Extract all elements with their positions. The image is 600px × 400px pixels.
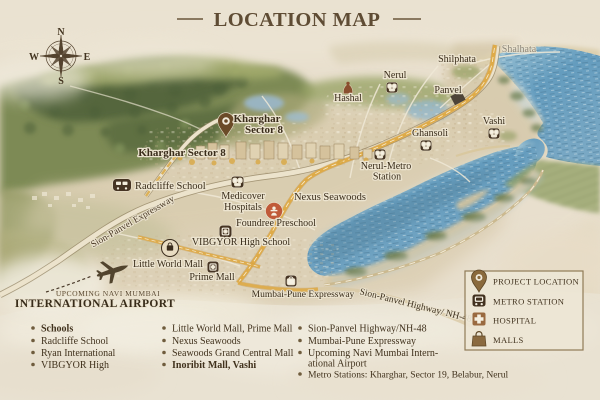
svg-text:Ghansoli: Ghansoli	[412, 128, 448, 139]
svg-text:Mumbai-Pune Expressway: Mumbai-Pune Expressway	[308, 336, 416, 347]
svg-text:Nerul: Nerul	[384, 70, 407, 81]
svg-text:Shalhata: Shalhata	[502, 44, 537, 55]
svg-text:Upcoming Navi Mumbai Intern-: Upcoming Navi Mumbai Intern-	[308, 348, 438, 359]
svg-text:E: E	[84, 52, 91, 63]
svg-text:Nexus Seawoods: Nexus Seawoods	[172, 336, 241, 347]
svg-text:Inoribit Mall, Vashi: Inoribit Mall, Vashi	[172, 360, 256, 371]
svg-text:Hospitals: Hospitals	[224, 202, 262, 213]
svg-text:Radcliffe School: Radcliffe School	[41, 336, 109, 347]
svg-text:Prime Mall: Prime Mall	[189, 272, 234, 283]
svg-text:UPCOMING NAVI MUMBAI: UPCOMING NAVI MUMBAI	[56, 289, 160, 298]
svg-text:Vashi: Vashi	[483, 116, 505, 127]
svg-text:Panvel: Panvel	[434, 85, 461, 96]
svg-text:W: W	[29, 52, 39, 63]
svg-text:Kharghar Sector 8: Kharghar Sector 8	[138, 147, 226, 159]
svg-text:Mumbai-Pune Expressway: Mumbai-Pune Expressway	[252, 290, 355, 300]
svg-text:HOSPITAL: HOSPITAL	[493, 316, 536, 326]
svg-text:PROJECT LOCATION: PROJECT LOCATION	[493, 277, 580, 287]
svg-text:Hashal: Hashal	[334, 93, 362, 104]
svg-text:Medicover: Medicover	[221, 191, 265, 202]
svg-text:Radcliffe School: Radcliffe School	[135, 181, 206, 192]
svg-text:Little World Mall: Little World Mall	[133, 259, 203, 270]
svg-text:Seawoods Grand Central Mall: Seawoods Grand Central Mall	[172, 348, 294, 359]
svg-text:Schools: Schools	[41, 324, 73, 335]
svg-text:Metro Stations: Kharghar, Sect: Metro Stations: Kharghar, Sector 19, Bel…	[308, 370, 509, 381]
svg-text:LOCATION MAP: LOCATION MAP	[214, 9, 381, 31]
svg-text:ational Airport: ational Airport	[308, 359, 367, 370]
svg-text:Sector 8: Sector 8	[245, 124, 283, 136]
svg-text:Little World Mall, Prime Mall: Little World Mall, Prime Mall	[172, 324, 293, 335]
svg-text:Sion-Panvel Highway/NH-48: Sion-Panvel Highway/NH-48	[308, 324, 427, 335]
svg-text:Nexus Seawoods: Nexus Seawoods	[294, 192, 366, 203]
svg-text:VIBGYOR High School: VIBGYOR High School	[192, 237, 291, 248]
svg-text:Station: Station	[373, 172, 401, 183]
svg-text:MALLS: MALLS	[493, 335, 524, 345]
svg-text:Nerul-Metro: Nerul-Metro	[361, 161, 412, 172]
svg-text:INTERNATIONAL AIRPORT: INTERNATIONAL AIRPORT	[15, 298, 175, 310]
svg-text:METRO STATION: METRO STATION	[493, 297, 565, 307]
svg-text:N: N	[57, 27, 65, 38]
svg-text:S: S	[58, 76, 64, 87]
svg-text:Ryan International: Ryan International	[41, 348, 116, 359]
svg-text:Foundree Preschool: Foundree Preschool	[236, 218, 316, 229]
svg-text:Shilphata: Shilphata	[438, 54, 476, 65]
svg-text:VIBGYOR High: VIBGYOR High	[41, 360, 109, 371]
